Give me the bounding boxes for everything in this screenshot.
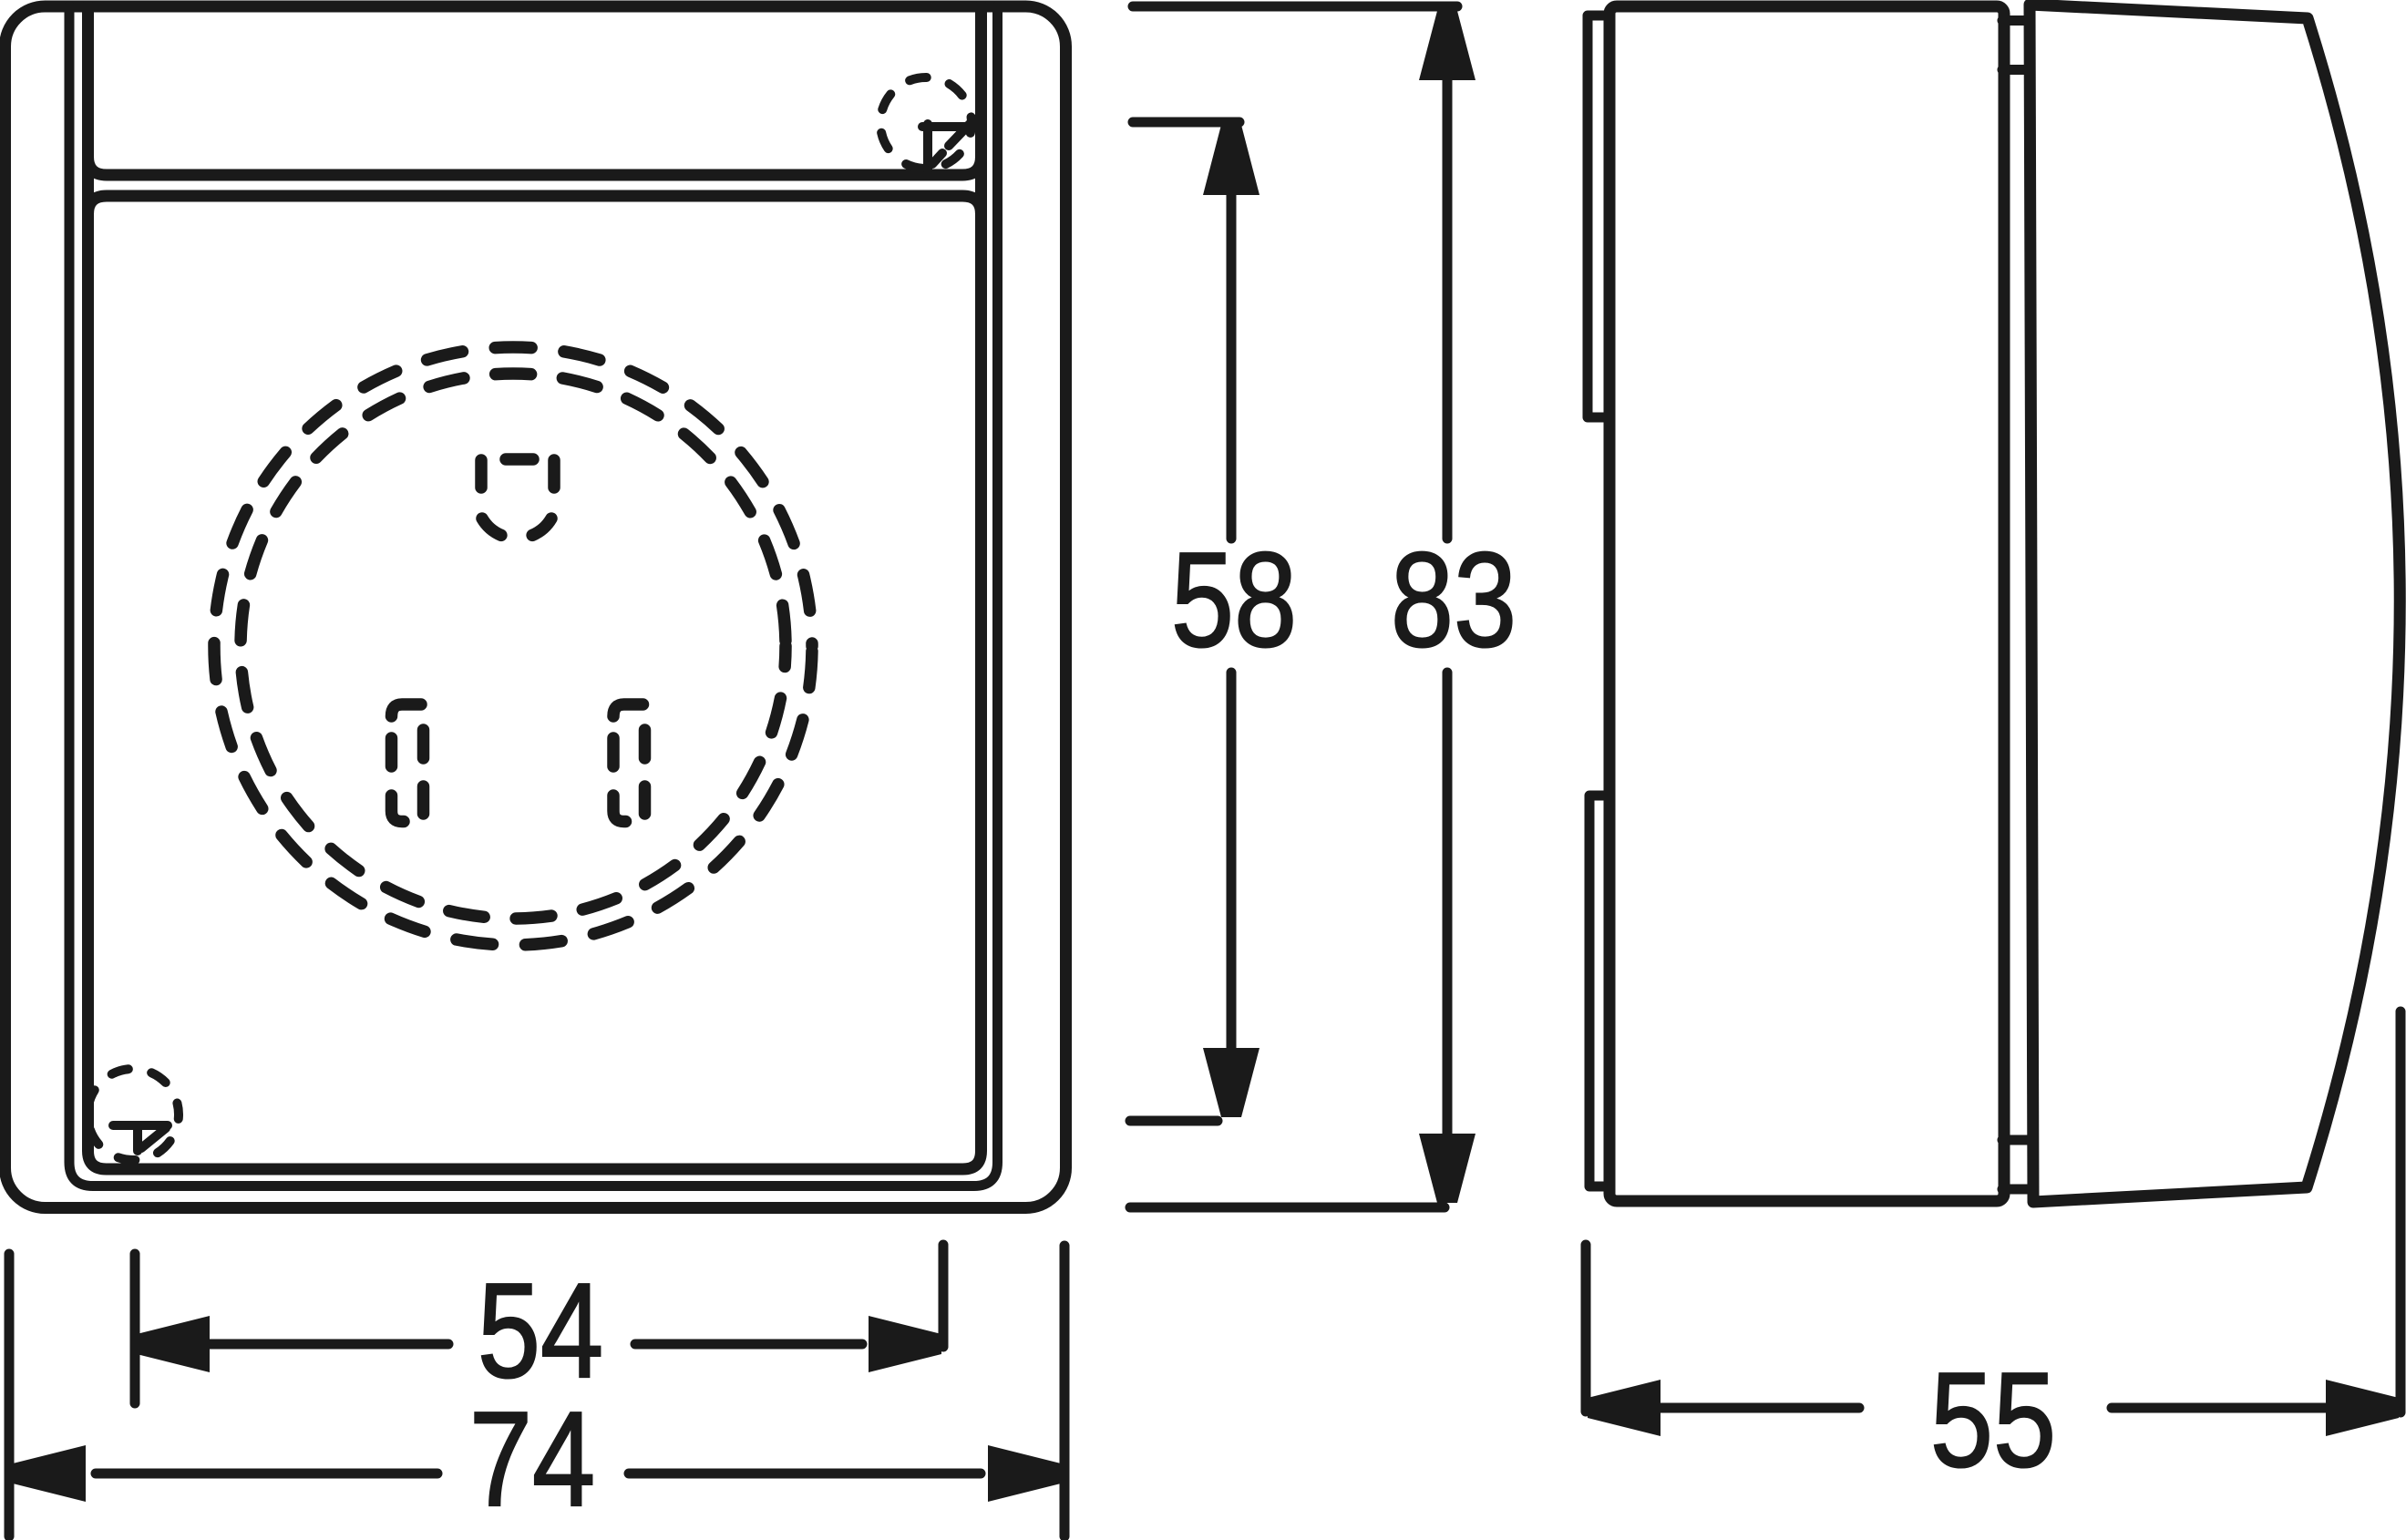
svg-text:74: 74 — [469, 1383, 595, 1535]
svg-text:55: 55 — [1930, 1344, 2056, 1495]
svg-text:58: 58 — [1171, 524, 1297, 675]
svg-text:83: 83 — [1391, 524, 1517, 675]
